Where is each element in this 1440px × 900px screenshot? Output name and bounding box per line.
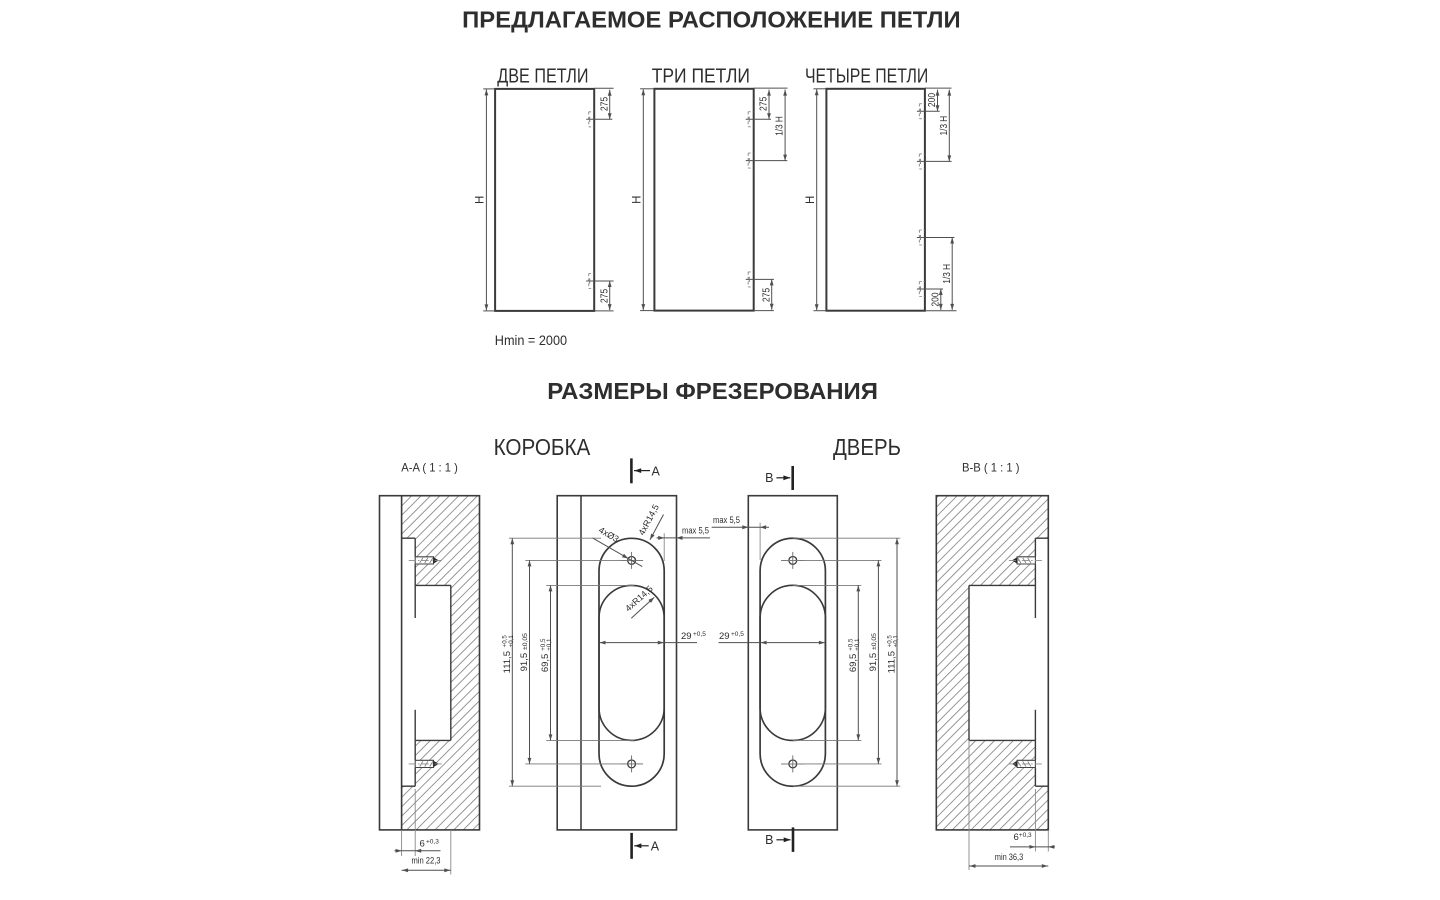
svg-text:111,5: 111,5 [887,651,898,673]
svg-text:КОРОБКА: КОРОБКА [494,434,591,460]
svg-text:ДВЕРЬ: ДВЕРЬ [833,434,901,460]
svg-text:1/3 H: 1/3 H [939,116,950,136]
svg-text:H: H [632,196,644,204]
svg-text:ДВЕ ПЕТЛИ: ДВЕ ПЕТЛИ [497,65,588,88]
svg-text:+0,5: +0,5 [731,631,744,638]
svg-text:A: A [652,464,661,478]
svg-text:B: B [765,471,773,485]
svg-text:91,5: 91,5 [868,653,879,672]
svg-text:6: 6 [420,838,425,849]
svg-text:69,5: 69,5 [848,654,859,673]
svg-text:+0,1: +0,1 [893,635,900,648]
svg-text:min 22,3: min 22,3 [412,856,441,867]
svg-text:275: 275 [759,96,770,111]
svg-text:+0,1: +0,1 [546,638,553,651]
svg-text:111,5: 111,5 [502,651,513,673]
svg-text:B: B [765,833,773,847]
svg-text:A: A [651,839,660,853]
svg-text:200: 200 [927,92,938,107]
svg-text:1/3 H: 1/3 H [942,264,953,284]
svg-text:+0,1: +0,1 [508,635,515,648]
svg-text:A-A ( 1 : 1 ): A-A ( 1 : 1 ) [401,461,458,475]
svg-text:max 5,5: max 5,5 [682,525,709,536]
svg-text:ТРИ ПЕТЛИ: ТРИ ПЕТЛИ [652,65,750,88]
svg-text:H: H [475,196,487,204]
svg-text:+0,3: +0,3 [426,838,439,845]
svg-text:±0,05: ±0,05 [522,633,529,650]
svg-text:Hmin = 2000: Hmin = 2000 [495,332,567,348]
svg-text:29: 29 [719,631,730,642]
svg-text:275: 275 [599,288,610,303]
svg-text:275: 275 [761,287,772,302]
svg-text:min 36,3: min 36,3 [995,852,1024,863]
svg-text:max 5,5: max 5,5 [713,515,740,526]
svg-text:29: 29 [681,631,692,642]
svg-text:H: H [805,196,817,204]
svg-text:B-B ( 1 : 1 ): B-B ( 1 : 1 ) [962,461,1020,475]
svg-text:±0,05: ±0,05 [871,633,878,650]
svg-text:+0,3: +0,3 [1019,832,1032,839]
svg-text:ПРЕДЛАГАЕМОЕ РАСПОЛОЖЕНИЕ ПЕТЛ: ПРЕДЛАГАЕМОЕ РАСПОЛОЖЕНИЕ ПЕТЛИ [462,6,960,32]
svg-text:200: 200 [930,292,941,307]
svg-text:+0,5: +0,5 [693,631,706,638]
svg-text:1/3 H: 1/3 H [775,116,786,136]
svg-text:91,5: 91,5 [519,653,530,672]
svg-text:69,5: 69,5 [540,654,551,673]
svg-text:+0,1: +0,1 [854,638,861,651]
svg-text:ЧЕТЫРЕ ПЕТЛИ: ЧЕТЫРЕ ПЕТЛИ [805,65,928,88]
svg-text:РАЗМЕРЫ ФРЕЗЕРОВАНИЯ: РАЗМЕРЫ ФРЕЗЕРОВАНИЯ [547,378,878,404]
svg-text:275: 275 [599,96,610,111]
